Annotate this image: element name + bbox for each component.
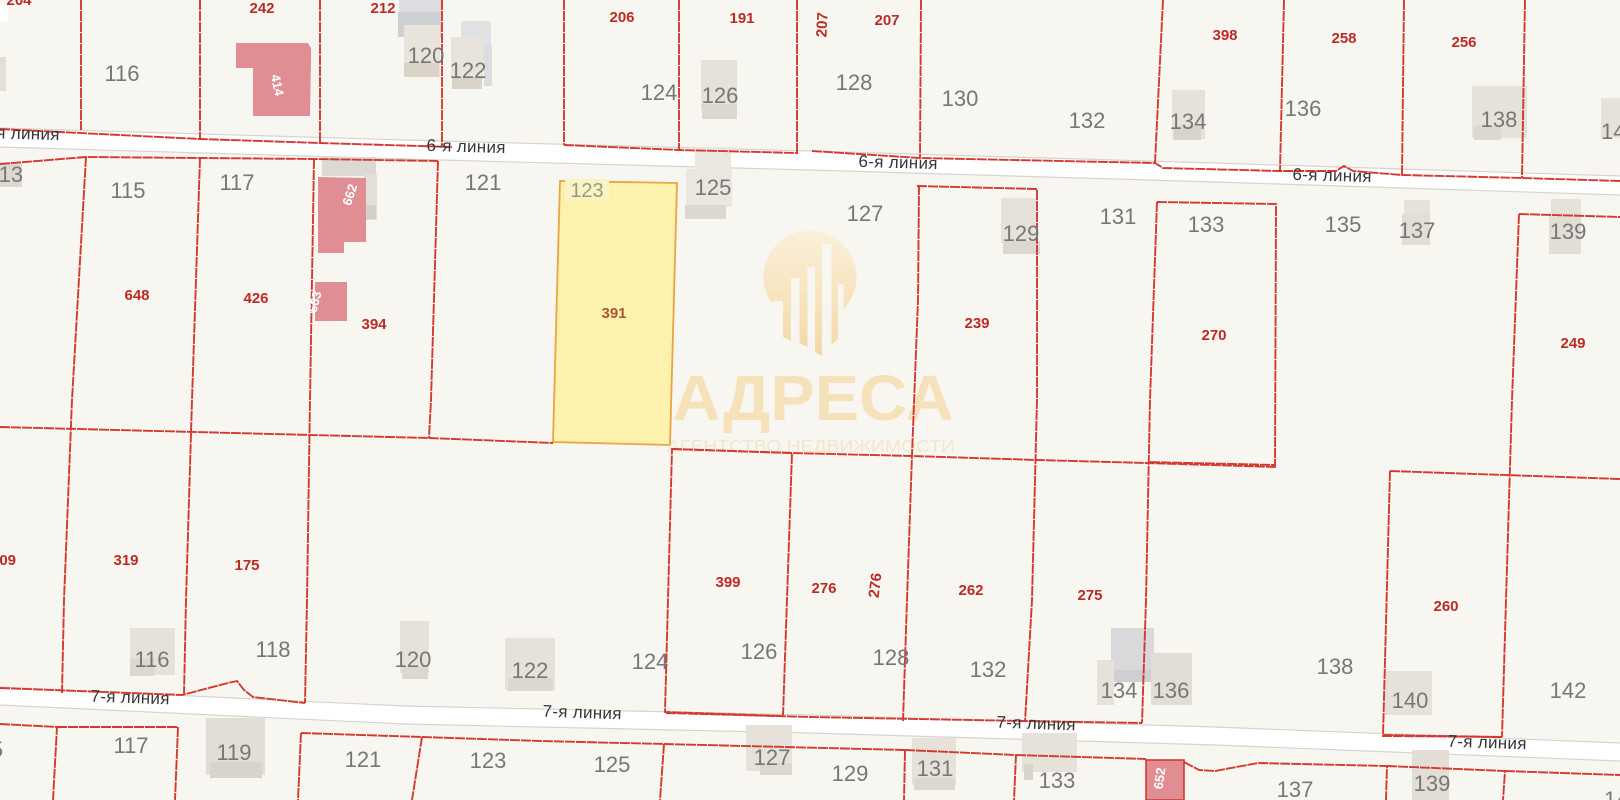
svg-text:120: 120 [395, 647, 432, 672]
svg-text:115: 115 [0, 737, 3, 762]
svg-text:139: 139 [1414, 771, 1451, 796]
svg-text:139: 139 [1550, 219, 1587, 244]
svg-text:391: 391 [601, 305, 626, 322]
svg-text:6-я линия: 6-я линия [1292, 165, 1372, 186]
svg-text:276: 276 [811, 580, 836, 597]
svg-text:131: 131 [1100, 204, 1137, 229]
svg-text:123: 123 [470, 748, 507, 773]
svg-text:262: 262 [958, 582, 983, 599]
svg-text:125: 125 [594, 752, 631, 777]
svg-text:128: 128 [836, 70, 873, 95]
svg-text:309: 309 [0, 552, 16, 569]
svg-text:118: 118 [255, 637, 290, 662]
svg-text:120: 120 [408, 43, 445, 68]
svg-text:122: 122 [450, 58, 487, 83]
svg-text:276: 276 [866, 572, 886, 599]
svg-text:116: 116 [104, 61, 139, 86]
svg-text:132: 132 [1069, 108, 1106, 133]
svg-text:134: 134 [1170, 109, 1207, 134]
svg-text:138: 138 [1481, 107, 1518, 132]
svg-text:140: 140 [1392, 688, 1429, 713]
svg-text:206: 206 [609, 9, 634, 26]
svg-text:426: 426 [243, 290, 268, 307]
svg-text:249: 249 [1560, 335, 1585, 352]
svg-text:7-я линия: 7-я линия [542, 702, 622, 724]
svg-text:399: 399 [715, 574, 740, 591]
svg-text:121: 121 [345, 747, 382, 772]
svg-text:137: 137 [1399, 218, 1436, 243]
svg-text:124: 124 [641, 80, 678, 105]
svg-text:124: 124 [632, 649, 669, 674]
svg-text:122: 122 [512, 658, 549, 683]
svg-text:129: 129 [832, 761, 869, 786]
svg-text:133: 133 [1039, 768, 1076, 793]
svg-text:394: 394 [361, 316, 387, 333]
svg-text:115: 115 [110, 178, 145, 203]
svg-text:126: 126 [702, 83, 739, 108]
svg-text:138: 138 [1317, 654, 1354, 679]
svg-text:142: 142 [1550, 678, 1587, 703]
svg-text:126: 126 [741, 639, 778, 664]
svg-text:204: 204 [6, 0, 32, 9]
svg-text:123: 123 [570, 180, 603, 202]
svg-text:398: 398 [1212, 27, 1237, 44]
svg-text:132: 132 [970, 657, 1007, 682]
svg-text:133: 133 [1188, 212, 1225, 237]
svg-text:6-я линия: 6-я линия [426, 136, 506, 157]
svg-text:136: 136 [1285, 96, 1322, 121]
svg-text:275: 275 [1077, 587, 1102, 604]
svg-text:128: 128 [873, 645, 910, 670]
svg-text:7-я линия: 7-я линия [996, 713, 1076, 735]
svg-text:129: 129 [1003, 221, 1040, 246]
svg-text:135: 135 [1325, 212, 1362, 237]
svg-text:134: 134 [1101, 678, 1138, 703]
svg-text:117: 117 [219, 170, 254, 195]
svg-text:6-я линия: 6-я линия [858, 152, 938, 173]
svg-text:242: 242 [249, 0, 274, 17]
svg-text:258: 258 [1331, 30, 1356, 47]
svg-text:207: 207 [813, 12, 831, 38]
svg-text:270: 270 [1201, 327, 1226, 344]
svg-text:127: 127 [754, 745, 791, 770]
svg-text:119: 119 [216, 740, 251, 765]
svg-text:136: 136 [1153, 678, 1190, 703]
svg-text:207: 207 [874, 12, 899, 29]
svg-text:175: 175 [234, 557, 259, 574]
svg-text:260: 260 [1433, 598, 1458, 615]
svg-text:АДРЕСА: АДРЕСА [673, 362, 954, 434]
svg-text:212: 212 [370, 0, 395, 17]
svg-text:131: 131 [917, 756, 954, 781]
svg-text:127: 127 [847, 201, 884, 226]
svg-text:319: 319 [113, 552, 138, 569]
svg-text:137: 137 [1277, 777, 1314, 800]
svg-text:648: 648 [124, 287, 149, 304]
svg-text:121: 121 [465, 170, 502, 195]
svg-text:6-я линия: 6-я линия [0, 123, 60, 144]
svg-text:141: 141 [1604, 787, 1620, 800]
svg-text:7-я линия: 7-я линия [1447, 732, 1527, 754]
svg-text:14: 14 [1601, 119, 1620, 144]
svg-text:191: 191 [729, 10, 754, 27]
svg-text:256: 256 [1451, 34, 1476, 51]
svg-text:7-я линия: 7-я линия [90, 687, 170, 709]
svg-text:116: 116 [134, 647, 169, 672]
svg-text:652: 652 [1151, 767, 1169, 791]
svg-text:125: 125 [695, 175, 732, 200]
svg-text:113: 113 [0, 162, 23, 187]
svg-text:130: 130 [942, 86, 979, 111]
svg-text:117: 117 [113, 733, 148, 758]
svg-text:239: 239 [964, 315, 989, 332]
